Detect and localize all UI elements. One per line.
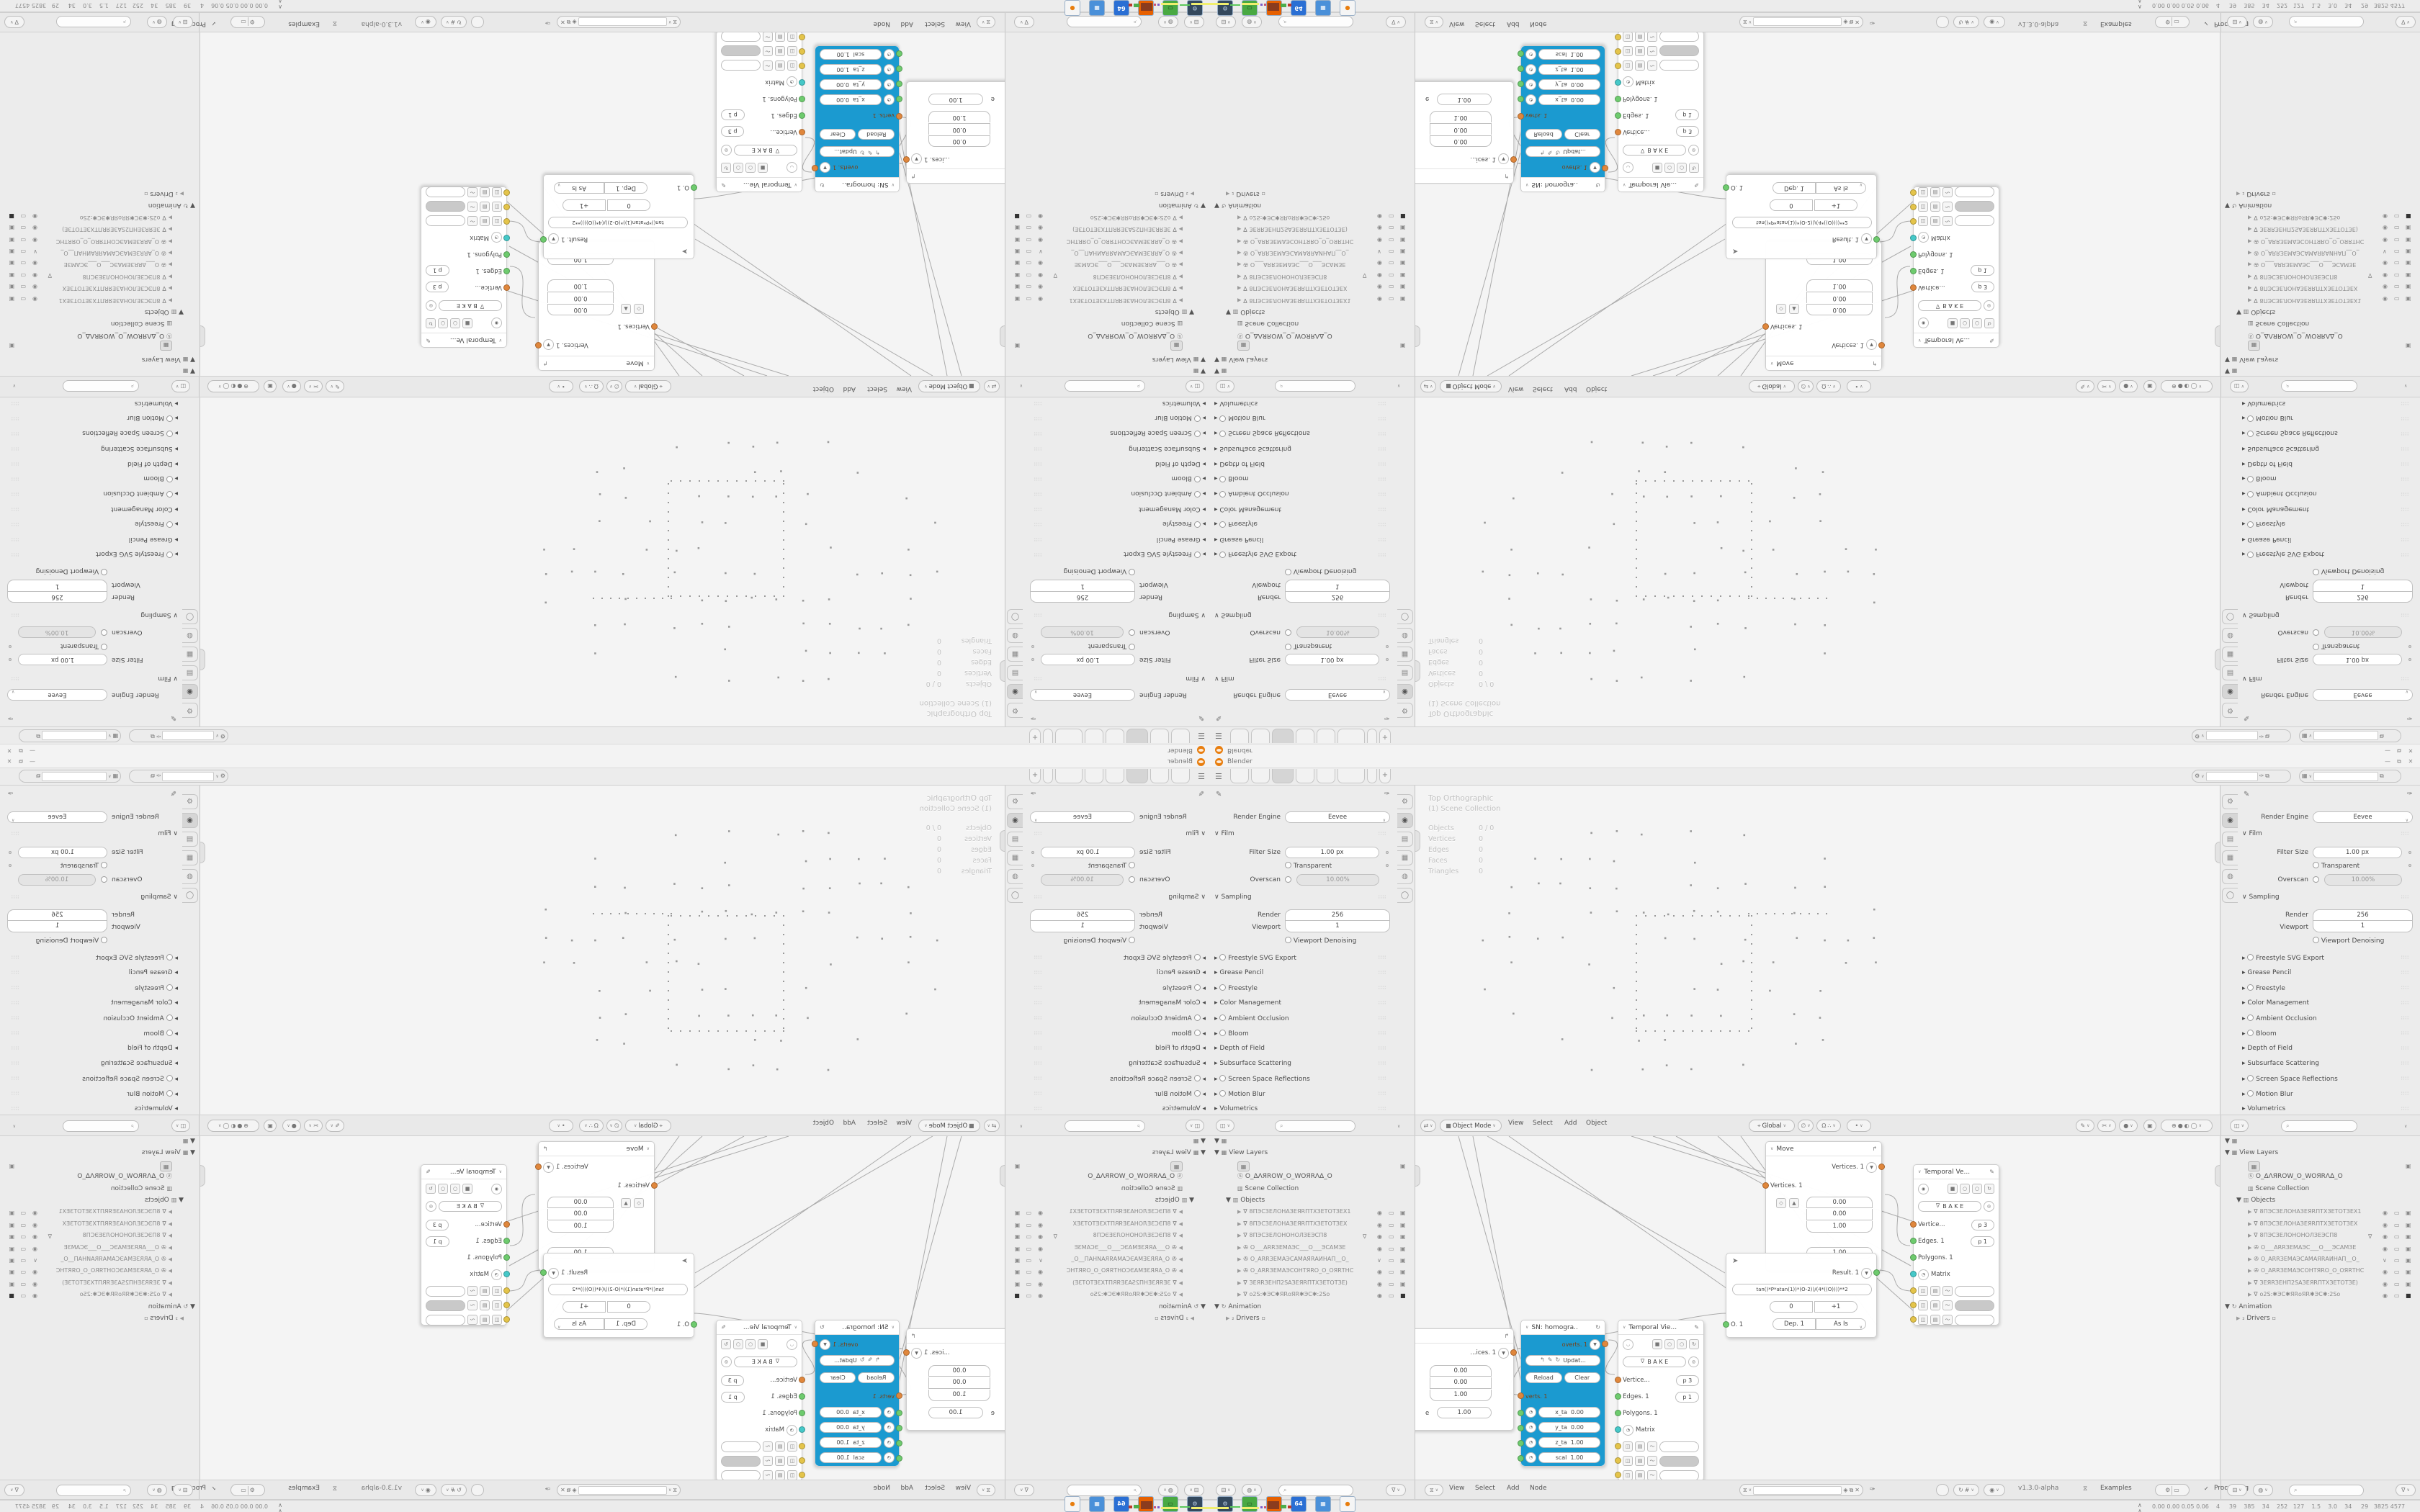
section-bloom[interactable]: ▸ Bloom <box>143 1030 178 1038</box>
object-row[interactable]: ▶ ∇ ЗЕЯRЗЕНП2SАЗЕЯRПТХЗЕТОТЗЕ) <box>62 221 172 233</box>
properties-search-input[interactable]: ⌕ <box>1275 1120 1355 1132</box>
node-header[interactable]: ↱ <box>907 1329 1005 1344</box>
sampling-viewport-field[interactable]: 1 <box>1030 921 1135 932</box>
properties-search-input[interactable]: ⌕ <box>1275 380 1355 392</box>
outliner-filter-owner[interactable]: ◍∨ <box>147 16 167 28</box>
eye-icon[interactable]: ◉ <box>2383 1210 2388 1216</box>
socket-s-ye[interactable] <box>503 189 510 196</box>
camera-icon[interactable]: ▣ <box>9 248 14 255</box>
viewport-3d[interactable]: Top Orthographic(1) Scene CollectionObje… <box>1415 397 2220 726</box>
properties-display-button[interactable]: ◫∨ <box>171 380 190 392</box>
object-row[interactable]: ▶ ∇ о2S:✱ЭС✱ЯRоЯR✱ЭС✱:2Sо <box>80 1291 172 1302</box>
section-freestyle-svg-export[interactable]: ▸ Freestyle SVG Export <box>2242 550 2324 558</box>
socket-s-or[interactable] <box>1910 284 1917 291</box>
filter-size-field[interactable]: 1.00 px <box>1041 847 1135 858</box>
camera-icon[interactable]: ▣ <box>2406 1210 2411 1216</box>
node-editor[interactable]: ∨Move↱Vertices. 1 ▼Vertices. 10.000.001.… <box>1415 32 2220 376</box>
socket-s-or[interactable] <box>1518 113 1524 120</box>
view-layers-row[interactable]: ▼ ▦ View Layers <box>1214 351 1268 363</box>
eye-icon[interactable]: ∨ <box>1039 1257 1043 1264</box>
section-ambient-occlusion[interactable]: ▸ Ambient Occlusion <box>103 490 178 498</box>
properties-search-input[interactable]: ⌕ <box>1065 1120 1145 1132</box>
tool-properties-tab-icon[interactable]: ⚙ <box>1397 794 1413 809</box>
object-row[interactable]: ▶ ∇ 8ПЭСЗЕЛОНОНОЛЗЕЭСП8 <box>2248 269 2337 280</box>
viewport-menu-object[interactable]: Object <box>813 1120 834 1127</box>
pin-icon[interactable]: ✑ <box>7 791 13 798</box>
objects-row[interactable]: ▼ ▥ Objects <box>2236 304 2275 315</box>
overscan-checkbox[interactable] <box>1129 876 1135 884</box>
node-field-row[interactable]: ◫▤〜 <box>1918 186 1994 199</box>
object-row[interactable]: ▶ ✇ О_АRRЗЕМАЭСАМАЯRАИНАП__О_ <box>1237 1256 1349 1267</box>
section-depth-of-field[interactable]: ▸ Depth of Field <box>127 460 178 467</box>
anim-dot[interactable] <box>2408 862 2411 869</box>
node-field-row[interactable]: ◫▤〜 <box>721 59 797 72</box>
camera-icon[interactable]: ▣ <box>2406 296 2411 302</box>
workspace-tab-7[interactable] <box>1367 769 1377 783</box>
object-row[interactable]: ▶ ∇ о2S:✱ЭС✱ЯRоЯR✱ЭС✱:2Sо <box>2248 1291 2340 1302</box>
monitor-icon[interactable]: ▭ <box>20 1210 26 1216</box>
anim-dot[interactable] <box>2408 643 2411 650</box>
bake-row[interactable]: ∇B A K E◎ <box>1918 1200 1994 1212</box>
eye-icon[interactable]: ◉ <box>32 1246 37 1252</box>
section-grease-pencil[interactable]: ▸ Grease Pencil <box>129 536 178 543</box>
view-layer-properties-tab-icon[interactable]: ▦ <box>2222 647 2238 662</box>
section-freestyle[interactable]: ▸ Freestyle <box>2242 984 2285 992</box>
object-row[interactable]: ▶ ∇ 8ПЭСЗЕЛОНАЗЕЯRПТХЗЕТОТЗЕХ1 <box>2248 1208 2361 1220</box>
node-move[interactable]: ∨Move↱Vertices. 1 ▼Vertices. 10.000.001.… <box>1765 241 1882 371</box>
outliner-display-row[interactable]: ▼ ▦ <box>2225 1138 2237 1149</box>
node-icon-row[interactable]: ◉■○○↻ <box>1918 317 1994 330</box>
monitor-icon[interactable]: ▭ <box>1026 1210 1031 1216</box>
output-properties-tab-icon[interactable]: ▤ <box>2222 665 2238 680</box>
camera-icon[interactable]: ▣ <box>1400 296 1406 302</box>
vector-field[interactable]: 0.00 <box>547 304 614 315</box>
workspace-tab-7[interactable] <box>1043 729 1053 743</box>
camera-icon[interactable]: ▣ <box>1400 284 1406 290</box>
bake-row[interactable]: ∇B A K E◎ <box>1623 144 1699 157</box>
processing-buttons[interactable]: ⚙▭ <box>2155 1484 2190 1496</box>
xray-button[interactable]: ▣ <box>264 1120 277 1132</box>
node-field-row[interactable]: ◫▤〜 <box>1623 45 1699 58</box>
camera-icon[interactable]: ▣ <box>2406 248 2411 255</box>
editor-type-button[interactable]: ⇄∨ <box>984 380 1000 392</box>
eye-icon[interactable]: ◉ <box>32 213 37 220</box>
socket-s-gr[interactable] <box>503 1238 510 1244</box>
object-row[interactable]: ▶ ∇ 8ПЭСЗЕЛОНАЗЕЯRПТХЗЕТОТЗЕХ1 <box>2248 292 2361 304</box>
monitor-icon[interactable]: ▭ <box>2394 296 2400 302</box>
eye-icon[interactable]: ◉ <box>1377 260 1382 266</box>
monitor-icon[interactable]: ▭ <box>1026 1257 1031 1264</box>
object-row[interactable]: ▶ ∇ 8ПЭСЗЕЛОНОНОЛЗЕЭСП8 <box>1237 269 1327 280</box>
section-screen-space-reflections[interactable]: ▸ Screen Space Reflections <box>2242 429 2338 437</box>
socket-s-gr[interactable] <box>1518 1440 1524 1446</box>
drivers-row[interactable]: ▶ ₂ Drivers ▫ <box>1155 186 1194 197</box>
anim-dot[interactable] <box>2408 656 2411 663</box>
param-row[interactable]: ◔z_ta 1.00 <box>820 63 895 76</box>
editor-type-button[interactable]: ⧖∨ <box>1425 16 1443 28</box>
node-sn-homography[interactable]: ∨SN: homogra..↻overts. 1 ▼↰✎↻ Updat...Re… <box>1520 45 1605 192</box>
properties-search-input[interactable]: ⌕ <box>63 1120 139 1132</box>
render-engine-select[interactable]: Eevee∨ <box>1030 811 1135 823</box>
workspace-tab-4[interactable] <box>1296 729 1314 743</box>
object-row[interactable]: ▶ ✇ О_АRRЗЕМАЭСАМАЯRАИНАП__О_ <box>1071 245 1183 256</box>
monitor-icon[interactable]: ▭ <box>20 1281 26 1287</box>
sampling-render-field[interactable]: 256 <box>7 909 107 921</box>
viewport-3d[interactable]: Top Orthographic(1) Scene CollectionObje… <box>200 786 1005 1115</box>
up-icon[interactable]: ▲ <box>621 304 631 314</box>
close-button[interactable]: ✕ <box>4 757 14 766</box>
outliner-filter[interactable]: ∇∨ <box>2396 1484 2416 1496</box>
section-subsurface-scattering[interactable]: ▸ Subsurface Scattering <box>1129 1060 1206 1067</box>
camera-icon[interactable]: ▣ <box>2406 284 2411 290</box>
object-row[interactable]: ▶ ∇ 8ПЭСЗЕЛОНАЗЕЯRПТХЗЕТОТЗЕХ1 <box>1237 1208 1350 1220</box>
objects-row[interactable]: ▼ ▥ Objects <box>1226 304 1265 315</box>
socket-s-cy[interactable] <box>1910 235 1917 241</box>
param-row[interactable]: ◔x_ta 0.00 <box>1525 1405 1600 1418</box>
camera-icon[interactable]: ▣ <box>9 272 14 279</box>
snapping-button[interactable]: ↻#∨ <box>1953 16 1979 28</box>
eye-icon[interactable]: ◉ <box>2383 1246 2388 1252</box>
socket-s-gr[interactable] <box>1615 1393 1621 1400</box>
output-properties-tab-icon[interactable]: ▤ <box>1397 665 1413 680</box>
workspace-tab-3[interactable] <box>1272 769 1294 783</box>
parent-circle-button[interactable] <box>471 1484 484 1496</box>
node-header[interactable]: ∨Move↱ <box>1766 1142 1881 1156</box>
floppy-64-icon[interactable]: 64 <box>1291 0 1307 16</box>
node-header[interactable]: ∨SN: homogra..↻ <box>1521 177 1605 192</box>
vector-field[interactable]: 0.00 <box>1430 1377 1492 1389</box>
view-layer-icon[interactable]: ▦ <box>1170 341 1183 351</box>
render-engine-select[interactable]: Eevee∨ <box>1285 811 1390 823</box>
socket-s-or[interactable] <box>1762 323 1769 330</box>
shading-mode-group[interactable]: ⊕●◐◯∨ <box>207 1120 259 1132</box>
camera-icon[interactable]: ▣ <box>9 260 14 266</box>
outliner-filter[interactable]: ∇∨ <box>2396 16 2416 28</box>
sampling-section-header[interactable]: ∨ Sampling <box>2242 611 2280 618</box>
socket-s-cy[interactable] <box>503 1271 510 1277</box>
examples-label[interactable]: Examples <box>2100 1485 2132 1492</box>
anim-dot[interactable] <box>9 643 12 650</box>
vector-field[interactable]: 0.00 <box>547 292 614 303</box>
outliner-search-input[interactable]: ⌕ <box>56 1485 131 1496</box>
vector-field[interactable]: 0.00 <box>1430 1365 1492 1377</box>
pin-icon[interactable]: ✑ <box>7 714 13 721</box>
overscan-checkbox[interactable] <box>2313 876 2319 884</box>
socket-s-ye[interactable] <box>1615 1443 1621 1449</box>
viewport-denoising-checkbox[interactable]: Viewport Denoising <box>1285 937 1356 945</box>
socket-s-or[interactable] <box>812 1341 818 1347</box>
node-formula[interactable]: ➤Result. 1 ▼tan()*P*atan(1))*(O-2))/(4*(… <box>543 174 694 259</box>
param-row[interactable]: ◔scal 1.00 <box>1525 48 1600 61</box>
eye-icon[interactable]: ◉ <box>1377 1269 1382 1275</box>
snapping-button[interactable]: ↻#∨ <box>1953 1484 1979 1496</box>
up-icon[interactable]: ▲ <box>1789 1198 1799 1208</box>
node-header[interactable]: ↱ <box>1415 168 1513 183</box>
transparent-checkbox[interactable]: Transparent <box>1088 642 1135 650</box>
socket-s-or[interactable] <box>535 1164 542 1170</box>
workspace-tab-2[interactable] <box>1251 769 1270 783</box>
section-grease-pencil[interactable]: ▸ Grease Pencil <box>2242 536 2291 543</box>
socket-s-ye[interactable] <box>503 1302 510 1308</box>
camera-icon[interactable]: ▣ <box>1014 1222 1020 1228</box>
snapping-button[interactable]: ↻#∨ <box>441 16 467 28</box>
object-row[interactable]: ▶ ∇ 8ПЭСЗЕЛОНОНОЛЗЕЭСП8 <box>83 269 172 280</box>
socket-s-gr[interactable] <box>1615 1410 1621 1416</box>
eye-icon[interactable]: ◉ <box>1377 213 1382 220</box>
id-field-2[interactable] <box>42 732 107 741</box>
monitor-icon[interactable]: ▭ <box>20 1257 26 1264</box>
node-field-row[interactable]: ◫▤〜 <box>426 1284 502 1297</box>
transparent-checkbox[interactable]: Transparent <box>1088 862 1135 870</box>
monitor-icon[interactable]: ▭ <box>20 1233 26 1240</box>
split-segment[interactable]: 0 <box>607 199 650 211</box>
monitor-icon[interactable]: ▭ <box>1389 1269 1394 1275</box>
object-row[interactable]: ▶ ∇ ЗЕЯRЗЕНП2SАЗЕЯRПТХЗЕТОТЗЕ) <box>1237 221 1348 233</box>
camera-icon[interactable]: ▣ <box>9 296 14 302</box>
object-row[interactable]: ▶ ✇ О_АRRЗЕМАЭСОНТЯRО_О_ОЯRТНС <box>1237 233 1353 245</box>
camera-icon[interactable]: ▣ <box>2406 1281 2411 1287</box>
object-row[interactable]: ▶ ✇ О___АRRЗЕМАЭС___О___ЭСАМЗЕ <box>1237 1244 1346 1256</box>
param-row[interactable]: ◔x_ta 0.00 <box>820 1405 895 1418</box>
outliner-filter[interactable]: ∇∨ <box>1014 1484 1034 1496</box>
filter-size-field[interactable]: 1.00 px <box>18 654 107 665</box>
section-grease-pencil[interactable]: ▸ Grease Pencil <box>1157 536 1206 543</box>
socket-s-cy[interactable] <box>1910 1271 1917 1277</box>
view-layer-icon[interactable]: ▦ <box>2248 1161 2260 1171</box>
outliner-display-row[interactable]: ▼ ▦ <box>2225 363 2237 374</box>
view-layer-properties-tab-icon[interactable]: ▦ <box>1397 850 1413 865</box>
node-field-row[interactable]: ◫▤〜 <box>426 1313 502 1326</box>
window-titlebar[interactable]: Blender — ⧉ ✕ <box>0 756 1210 768</box>
sampling-render-field[interactable]: 256 <box>1030 909 1135 921</box>
socket-s-or[interactable] <box>896 113 902 120</box>
annotate-button[interactable]: ✎∨ <box>326 1120 344 1132</box>
node-sn-homography[interactable]: ∨SN: homogra..↻overts. 1 ▼↰✎↻ Updat...Re… <box>815 45 900 192</box>
node-field-row[interactable]: ◫▤〜 <box>1918 1299 1994 1312</box>
copy-icon[interactable]: ⧉ <box>151 733 155 739</box>
node-move-2[interactable]: ↱...ices. 1 ▼0.000.001.00e1.00 <box>906 1328 1005 1431</box>
camera-icon[interactable]: ■ <box>1400 213 1406 220</box>
eye-icon[interactable]: ◉ <box>32 1281 37 1287</box>
sampling-section-header[interactable]: ∨ Sampling <box>1214 894 1252 901</box>
maximize-button[interactable]: ⧉ <box>2394 746 2404 755</box>
viewport-menu-view[interactable]: View <box>1508 385 1523 392</box>
scene-collection-row[interactable]: ▥ Scene Collection <box>1121 1185 1183 1197</box>
socket-s-gr[interactable] <box>1910 1238 1917 1244</box>
scene-row[interactable]: Ⓢ O_ΔΛЯROW_O_WOЯRΛΔ_O <box>1088 328 1183 339</box>
drivers-row[interactable]: ▶ ₂ Drivers ▫ <box>1226 186 1265 197</box>
section-bloom[interactable]: ▸ Bloom <box>1214 474 1249 482</box>
viewport-denoising-checkbox[interactable]: Viewport Denoising <box>1064 937 1135 945</box>
camera-icon[interactable]: ▣ <box>1400 1163 1406 1169</box>
split-segment[interactable]: 0 <box>1770 1301 1813 1313</box>
monitor-icon[interactable]: ▭ <box>1026 260 1031 266</box>
monitor-icon[interactable]: ▭ <box>1389 272 1394 279</box>
drivers-row[interactable]: ▶ ₂ Drivers ▫ <box>144 1315 184 1326</box>
as-is-select[interactable]: As Is∨ <box>554 1318 604 1330</box>
object-row[interactable]: ▶ ✇ О_АRRЗЕМАЭСОНТЯRО_О_ОЯRТНС <box>1237 1267 1353 1279</box>
system-monitor-icon[interactable]: ⚙ <box>1217 1496 1233 1512</box>
reload-clear-row[interactable]: ReloadClear <box>1525 128 1600 141</box>
camera-icon[interactable]: ▣ <box>1400 237 1406 243</box>
socket-s-or[interactable] <box>1510 156 1517 163</box>
socket-s-ye[interactable] <box>1615 63 1621 69</box>
eye-icon[interactable]: ◉ <box>32 1269 37 1275</box>
node-field-row[interactable]: ◫▤〜 <box>721 45 797 58</box>
eye-icon[interactable]: ∨ <box>33 1257 37 1264</box>
pin-icon[interactable]: ✑ <box>1384 791 1390 798</box>
id-field-2[interactable] <box>2313 772 2378 781</box>
object-row[interactable]: ▶ ✇ О_АRRЗЕМАЭСОНТЯRО_О_ОЯRТНС <box>1067 233 1183 245</box>
editor-type-button[interactable]: ⇄∨ <box>1420 1120 1436 1132</box>
filter-size-field[interactable]: 1.00 px <box>1285 847 1379 858</box>
node-icon-row[interactable]: ◉■○○↻ <box>1918 1182 1994 1195</box>
section-freestyle-svg-export[interactable]: ▸ Freestyle SVG Export <box>1214 954 1296 962</box>
shading-mode-group[interactable]: ⊕●◐◯∨ <box>2161 380 2213 392</box>
node-header[interactable]: ∨Temporal Vie...✎ <box>1618 1320 1703 1335</box>
viewport-denoising-checkbox[interactable]: Viewport Denoising <box>36 567 107 575</box>
tool-properties-tab-icon[interactable]: ⚙ <box>182 703 198 718</box>
node-header[interactable]: ∨Temporal Ve...✎ <box>1914 1165 1999 1179</box>
node-formula[interactable]: ➤Result. 1 ▼tan()*P*atan(1))*(O-2))/(4*(… <box>543 1253 694 1338</box>
overlay-button[interactable]: ◉∨ <box>415 1484 436 1496</box>
film-section-header[interactable]: ∨ Film <box>1186 675 1206 682</box>
sampling-viewport-field[interactable]: 1 <box>2313 921 2413 932</box>
node-header[interactable]: ∨Temporal Vie...✎ <box>1618 177 1703 192</box>
object-row[interactable]: ▶ ∇ 8ПЭСЗЕЛОНАЗЕЯRПТХЗЕТОТЗЕХ1 <box>59 292 172 304</box>
film-section-header[interactable]: ∨ Film <box>2242 675 2262 682</box>
socket-s-gr[interactable] <box>691 1321 697 1328</box>
world-properties-tab-icon[interactable]: ◯ <box>2222 609 2238 624</box>
param-row[interactable]: ◔y_ta 0.00 <box>1525 78 1600 91</box>
section-motion-blur[interactable]: ▸ Motion Blur <box>2242 1090 2293 1098</box>
view-layers-row[interactable]: ▼ ▦ View Layers <box>142 351 195 363</box>
orientation-dropdown[interactable]: ⌖Global∨ <box>1749 380 1795 392</box>
scene-collection-row[interactable]: ▥ Scene Collection <box>111 1185 172 1197</box>
menu-icon[interactable]: ☰ <box>1198 772 1205 781</box>
snap-button[interactable]: Ω∴∨ <box>1816 380 1841 392</box>
section-ambient-occlusion[interactable]: ▸ Ambient Occlusion <box>2242 490 2317 498</box>
transparent-checkbox[interactable]: Transparent <box>60 642 107 650</box>
socket-s-or[interactable] <box>903 156 910 163</box>
camera-icon[interactable]: ▣ <box>1400 1222 1406 1228</box>
param-row[interactable]: ◔y_ta 0.00 <box>1525 1421 1600 1434</box>
param-row[interactable]: ◔x_ta 0.00 <box>820 94 895 107</box>
node-editor[interactable]: ∨Move↱Vertices. 1 ▼Vertices. 10.000.001.… <box>200 32 1005 376</box>
section-subsurface-scattering[interactable]: ▸ Subsurface Scattering <box>1214 1060 1291 1067</box>
keyframe-icon[interactable]: ◇ <box>1776 1198 1786 1208</box>
scene-collection-row[interactable]: ▥ Scene Collection <box>1237 1185 1299 1197</box>
objects-row[interactable]: ▼ ▥ Objects <box>145 304 184 315</box>
monitor-icon[interactable]: ▭ <box>1389 237 1394 243</box>
object-row[interactable]: ▶ ✇ О___АRRЗЕМАЭС___О___ЭСАМЗЕ <box>1075 256 1183 268</box>
maximize-button[interactable]: ⧉ <box>2394 757 2404 766</box>
outliner-filter-owner[interactable]: ◍∨ <box>2253 16 2273 28</box>
screenshot-icon[interactable]: ▦ <box>1089 1496 1105 1512</box>
viewport-menu-view[interactable]: View <box>897 385 912 392</box>
eye-icon[interactable]: ∨ <box>1377 1257 1381 1264</box>
node-field-row[interactable]: ◫▤〜 <box>1623 1454 1699 1467</box>
object-row[interactable]: ▶ ✇ О_АRRЗЕМАЭСАМАЯRАИНАП__О_ <box>60 245 172 256</box>
sampling-section-header[interactable]: ∨ Sampling <box>1214 611 1252 618</box>
camera-icon[interactable]: ▣ <box>1400 1210 1406 1216</box>
object-row[interactable]: ▶ ∇ 8ПЭСЗЕЛОНОНОЛЗЕЭСП8 <box>1093 269 1183 280</box>
vector-field[interactable]: 0.00 <box>547 1209 614 1220</box>
eye-icon[interactable]: ◉ <box>32 296 37 302</box>
viewport-menu-select[interactable]: Select <box>1533 1120 1553 1127</box>
filter-size-field[interactable]: 1.00 px <box>1285 654 1379 665</box>
section-bloom[interactable]: ▸ Bloom <box>1214 1030 1249 1038</box>
param-row[interactable]: ◔z_ta 1.00 <box>1525 1436 1600 1449</box>
object-row[interactable]: ▶ ∇ 8ПЭСЗЕЛОНАЗЕЯRПТХЗЕТОТЗЕХ <box>1237 1220 1347 1232</box>
section-volumetrics[interactable]: ▸ Volumetrics <box>1214 1105 1258 1112</box>
snap-button[interactable]: Ω∴∨ <box>579 1120 604 1132</box>
eye-icon[interactable]: ◉ <box>2383 1269 2388 1275</box>
socket-s-gr[interactable] <box>1910 251 1917 258</box>
node-field-row[interactable]: ◫▤〜 <box>426 186 502 199</box>
section-ambient-occlusion[interactable]: ▸ Ambient Occlusion <box>1214 490 1289 498</box>
eye-icon[interactable]: ◉ <box>1038 225 1043 231</box>
sampling-viewport-field[interactable]: 1 <box>7 921 107 932</box>
properties-search-input[interactable]: ⌕ <box>2281 380 2357 392</box>
monitor-icon[interactable]: ▭ <box>1026 284 1031 290</box>
object-row[interactable]: ▶ ∇ 8ПЭСЗЕЛОНАЗЕЯRПТХЗЕТОТЗЕХ <box>63 280 172 292</box>
socket-s-ye[interactable] <box>799 63 805 69</box>
window-titlebar[interactable]: Blender — ⧉ ✕ <box>0 744 1210 756</box>
copy-icon[interactable]: ⧉ <box>36 773 40 779</box>
monitor-icon[interactable]: ▭ <box>20 296 26 302</box>
object-row[interactable]: ▶ ✇ О_АRRЗЕМАЭСАМАЯRАИНАП__О_ <box>2248 1256 2359 1267</box>
monitor-icon[interactable]: ▭ <box>2394 272 2400 279</box>
sampling-viewport-field[interactable]: 1 <box>1285 580 1390 591</box>
bake-row[interactable]: ∇B A K E◎ <box>1623 1355 1699 1368</box>
snap-button[interactable]: Ω∴∨ <box>1816 1120 1841 1132</box>
render-properties-tab-icon[interactable]: ◉ <box>1397 813 1413 828</box>
tool-properties-tab-icon[interactable]: ⚙ <box>1397 703 1413 718</box>
camera-icon[interactable]: ▣ <box>1014 237 1020 243</box>
anim-dot[interactable] <box>9 849 12 856</box>
id-selector-1[interactable]: ⚙∨ ✑ ⧉ <box>2192 770 2291 783</box>
node-field-row[interactable]: ◫▤〜 <box>1623 32 1699 43</box>
monitor-icon[interactable]: ▭ <box>20 225 26 231</box>
socket-s-gr[interactable] <box>1723 184 1729 191</box>
output-properties-tab-icon[interactable]: ▤ <box>2222 832 2238 847</box>
monitor-icon[interactable]: ▭ <box>2394 1257 2400 1264</box>
object-row[interactable]: ▶ ✇ О_АRRЗЕМАЭСАМАЯRАИНАП__О_ <box>60 1256 172 1267</box>
section-subsurface-scattering[interactable]: ▸ Subsurface Scattering <box>101 445 178 452</box>
overscan-checkbox[interactable] <box>101 876 107 884</box>
menu-icon[interactable]: ☰ <box>1215 731 1222 740</box>
eye-icon[interactable]: ◉ <box>1377 284 1382 290</box>
socket-s-ye[interactable] <box>1910 1287 1917 1294</box>
section-freestyle-svg-export[interactable]: ▸ Freestyle SVG Export <box>1124 954 1206 962</box>
add-workspace-button[interactable]: + <box>1029 769 1041 783</box>
world-properties-tab-icon[interactable]: ◯ <box>182 888 198 903</box>
section-freestyle[interactable]: ▸ Freestyle <box>1162 520 1206 528</box>
anim-dot[interactable] <box>9 656 12 663</box>
animation-row[interactable]: ▼ ↻ Animation <box>148 1303 195 1315</box>
socket-s-cy[interactable] <box>1615 1426 1621 1433</box>
transparent-checkbox[interactable]: Transparent <box>2313 642 2359 650</box>
id-field-2[interactable] <box>2313 732 2378 741</box>
camera-icon[interactable]: ■ <box>1014 1292 1020 1299</box>
bake-row[interactable]: ∇B A K E◎ <box>721 1355 797 1368</box>
object-row[interactable]: ▶ ∇ о2S:✱ЭС✱ЯRоЯR✱ЭС✱:2Sо <box>1090 1291 1183 1302</box>
section-freestyle-svg-export[interactable]: ▸ Freestyle SVG Export <box>96 954 178 962</box>
object-row[interactable]: ▶ ∇ о2S:✱ЭС✱ЯRоЯR✱ЭС✱:2Sо <box>1237 1291 1330 1302</box>
outliner-display-mode[interactable]: ⊟∨ <box>173 1484 193 1496</box>
view-layer-properties-tab-icon[interactable]: ▦ <box>2222 850 2238 865</box>
